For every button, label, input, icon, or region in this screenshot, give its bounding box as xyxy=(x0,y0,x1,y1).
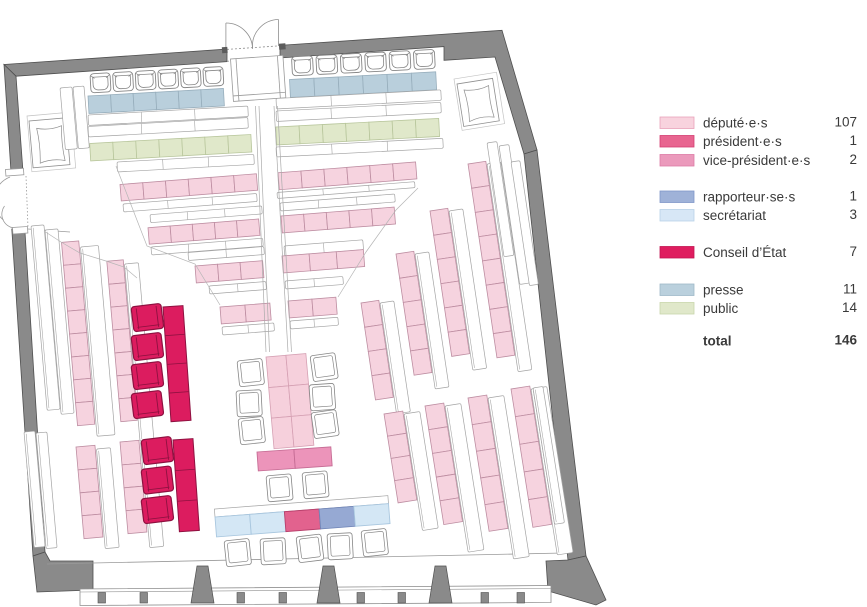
svg-text:7: 7 xyxy=(849,244,857,259)
svg-text:Conseil d’État: Conseil d’État xyxy=(703,245,787,260)
svg-text:3: 3 xyxy=(849,207,857,222)
svg-text:1: 1 xyxy=(849,189,857,204)
svg-text:1: 1 xyxy=(849,133,857,148)
svg-text:secrétariat: secrétariat xyxy=(703,208,766,223)
svg-text:président·e·s: président·e·s xyxy=(703,134,782,149)
svg-text:107: 107 xyxy=(834,115,857,130)
svg-text:14: 14 xyxy=(842,300,858,315)
svg-text:2: 2 xyxy=(849,152,857,167)
svg-text:total: total xyxy=(703,334,732,349)
svg-text:public: public xyxy=(703,301,739,316)
svg-text:presse: presse xyxy=(703,283,744,298)
svg-text:rapporteur·se·s: rapporteur·se·s xyxy=(703,190,796,205)
svg-text:11: 11 xyxy=(843,282,857,297)
svg-text:député·e·s: député·e·s xyxy=(703,116,768,131)
svg-text:146: 146 xyxy=(834,333,857,348)
svg-text:vice-président·e·s: vice-président·e·s xyxy=(703,153,811,168)
